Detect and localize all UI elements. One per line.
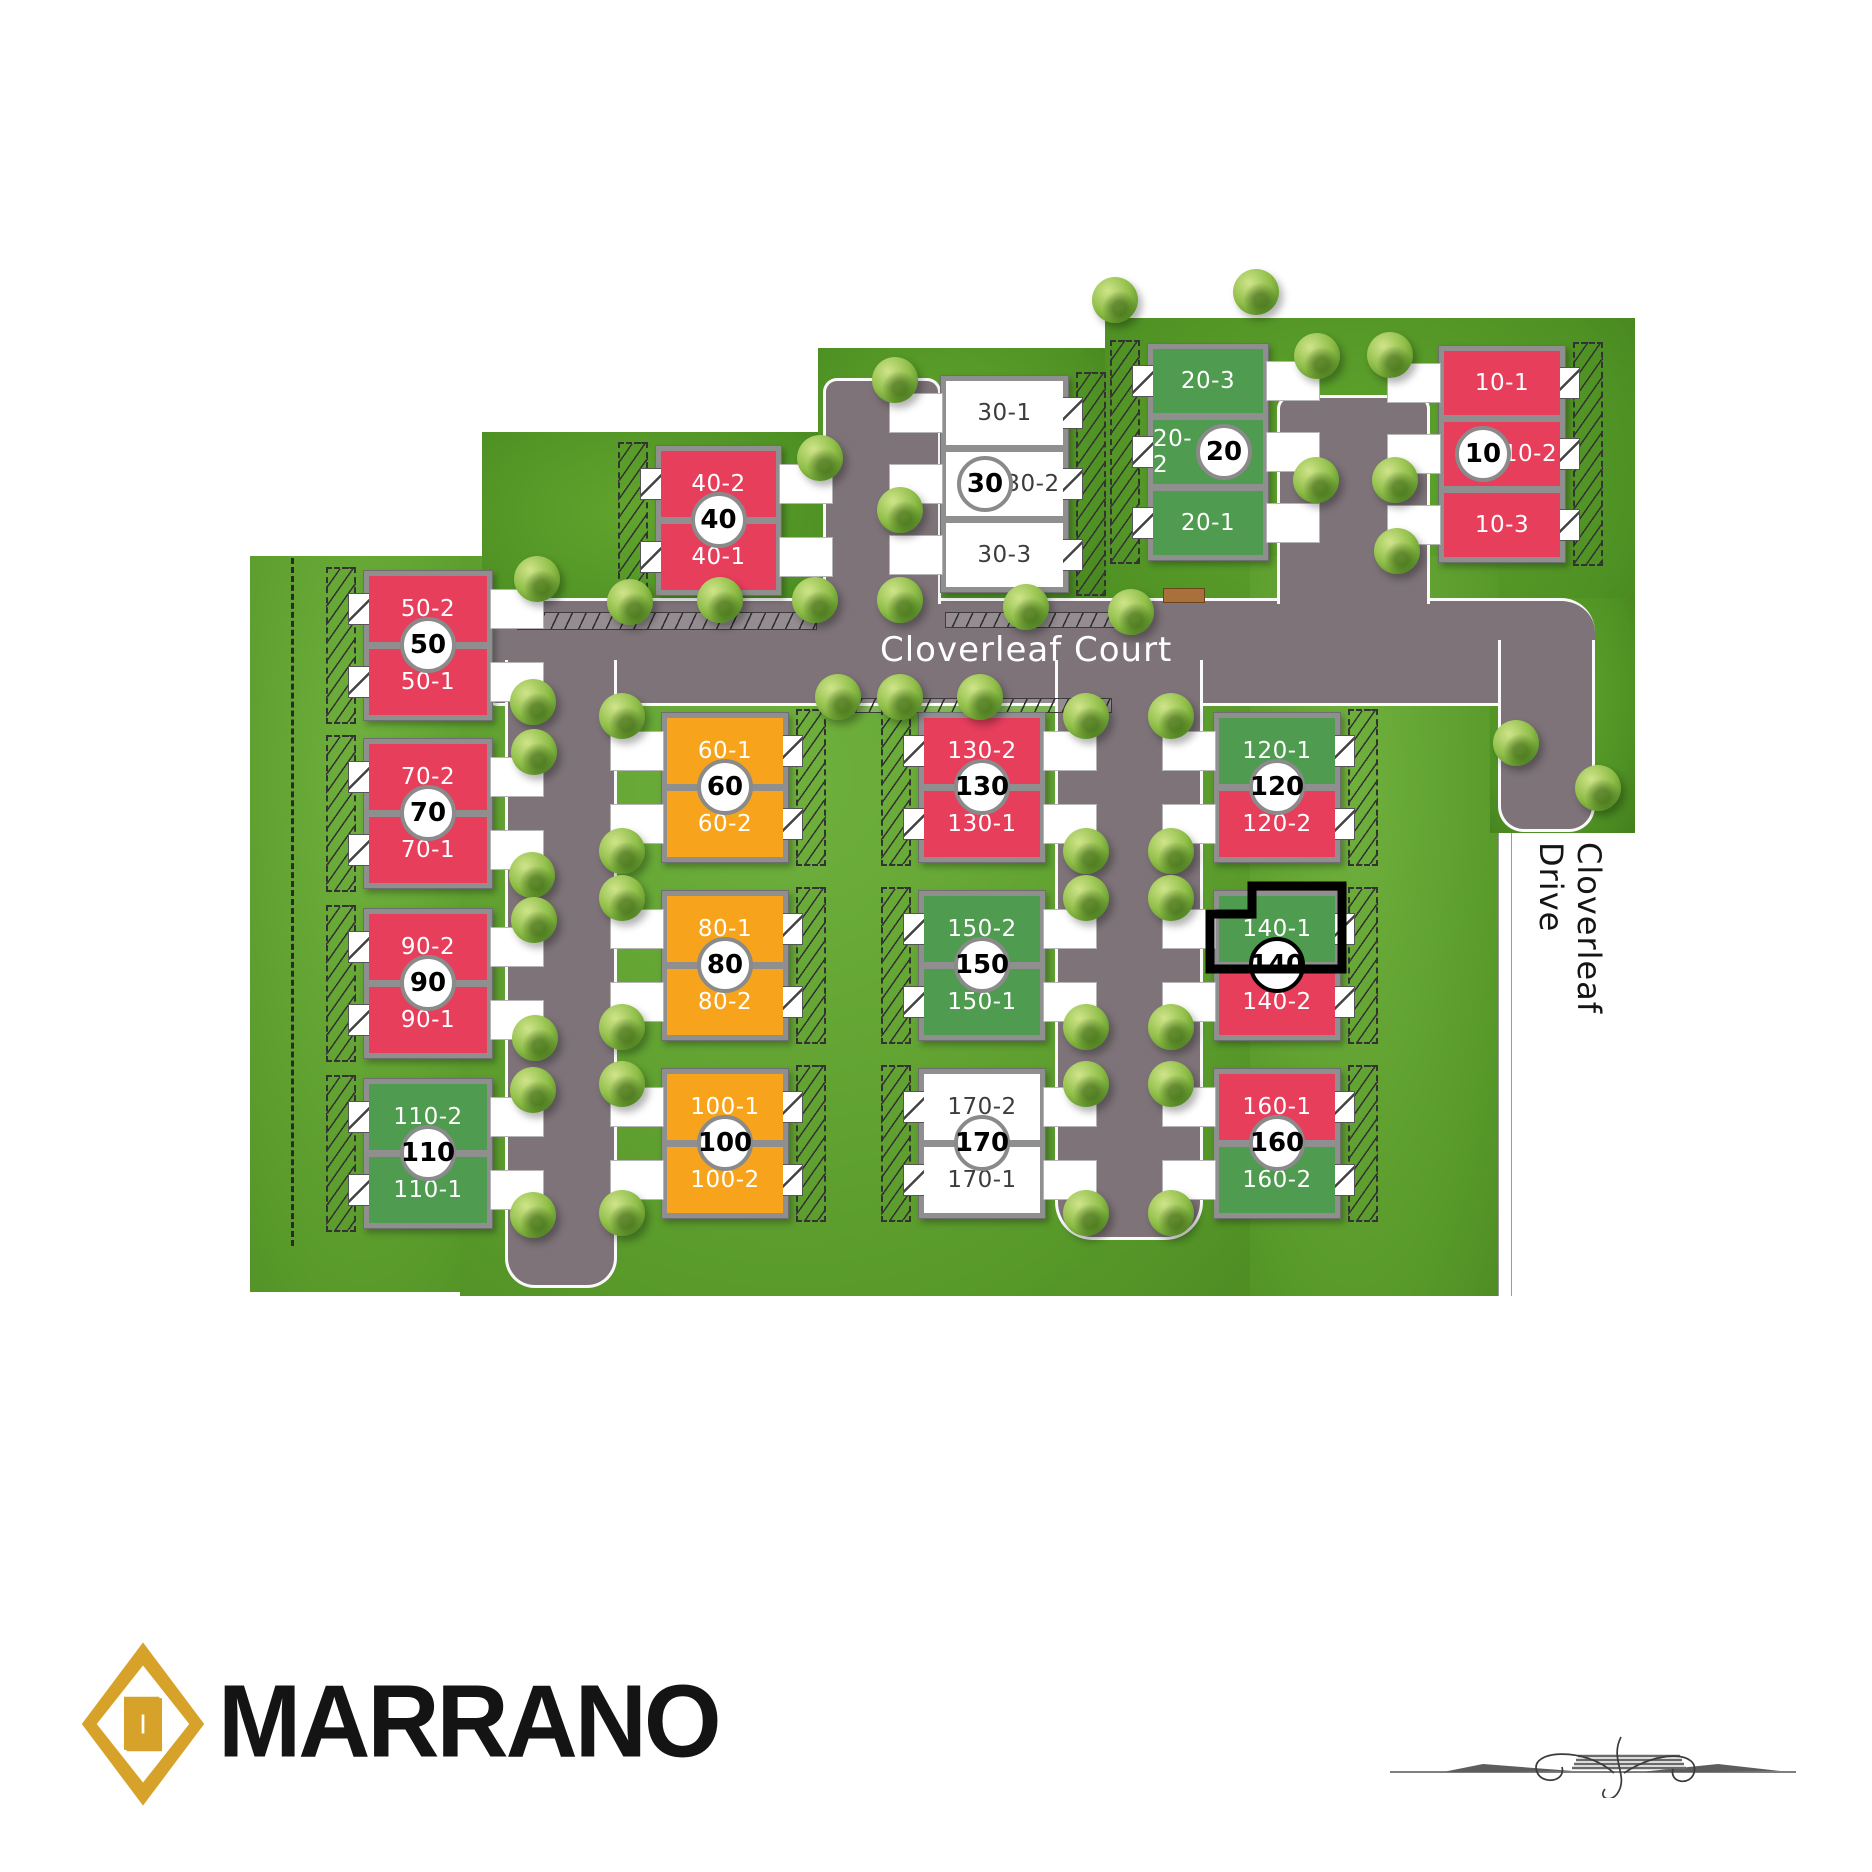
- unit-label-10-1: 10-1: [1475, 370, 1529, 396]
- building-120: 120-1120-2120: [1213, 712, 1341, 863]
- tree: [1293, 457, 1339, 503]
- building-badge-60: 60: [697, 759, 753, 815]
- building-badge-90: 90: [400, 955, 456, 1011]
- tree: [1374, 528, 1420, 574]
- unit-30-3[interactable]: 30-3: [946, 523, 1063, 587]
- tree: [510, 679, 556, 725]
- patio-hatch-40: [618, 442, 648, 599]
- unit-10-1[interactable]: 10-1: [1444, 351, 1560, 415]
- building-badge-30: 30: [957, 456, 1013, 512]
- tree: [599, 875, 645, 921]
- building-badge-20: 20: [1196, 424, 1252, 480]
- marrano-wordmark: MARRANO: [218, 1662, 719, 1781]
- tree: [1575, 765, 1621, 811]
- marrano-logo-icon: [75, 1642, 211, 1806]
- tree: [697, 577, 743, 623]
- tree: [1367, 332, 1413, 378]
- patio-hatch-80: [796, 887, 826, 1044]
- patio-hatch-100: [796, 1065, 826, 1222]
- tree: [815, 674, 861, 720]
- building-160: 160-1160-2160: [1213, 1068, 1341, 1219]
- building-80: 80-180-280: [661, 890, 789, 1041]
- tree: [1148, 828, 1194, 874]
- tree: [510, 1192, 556, 1238]
- patio-hatch-130: [881, 709, 911, 866]
- building-170: 170-2170-1170: [918, 1068, 1046, 1219]
- right-of-way-boundary: [1498, 833, 1512, 1296]
- tree: [1063, 828, 1109, 874]
- building-60: 60-160-260: [661, 712, 789, 863]
- driveway-40-1: [779, 537, 833, 577]
- building-90: 90-290-190: [363, 908, 493, 1059]
- building-badge-50: 50: [400, 617, 456, 673]
- building-badge-140: 140: [1249, 937, 1305, 993]
- tree: [599, 1004, 645, 1050]
- building-badge-40: 40: [691, 492, 747, 548]
- decorative-flourish: [1388, 1732, 1798, 1798]
- tree: [1092, 277, 1138, 323]
- tree: [514, 556, 560, 602]
- tree: [1063, 875, 1109, 921]
- patio-hatch-140: [1348, 887, 1378, 1044]
- tree: [599, 828, 645, 874]
- tree: [1148, 693, 1194, 739]
- patio-hatch-110: [326, 1075, 356, 1232]
- patio-hatch-60: [796, 709, 826, 866]
- patio-hatch-170: [881, 1065, 911, 1222]
- unit-label-20-3: 20-3: [1181, 368, 1235, 394]
- street-label-cloverleaf-drive: Cloverleaf Drive: [1532, 842, 1608, 1102]
- building-20: 20-320-220-120: [1147, 343, 1269, 561]
- building-badge-80: 80: [697, 937, 753, 993]
- unit-30-1[interactable]: 30-1: [946, 381, 1063, 445]
- tree: [877, 487, 923, 533]
- building-70: 70-270-170: [363, 738, 493, 889]
- building-badge-100: 100: [697, 1115, 753, 1171]
- sidewalk-hatch-west: [517, 612, 817, 630]
- driveway-20-1: [1266, 503, 1320, 543]
- patio-hatch-70: [326, 735, 356, 892]
- building-badge-10: 10: [1455, 426, 1511, 482]
- driveway-30-3: [889, 535, 943, 575]
- tree: [1294, 333, 1340, 379]
- building-50: 50-250-150: [363, 570, 493, 721]
- property-dashed-line: [291, 558, 294, 1246]
- tree: [1148, 875, 1194, 921]
- building-140: 140-1140-2140: [1213, 890, 1341, 1041]
- building-40: 40-240-140: [655, 445, 782, 596]
- tree: [599, 1061, 645, 1107]
- tree: [511, 729, 557, 775]
- tree: [1108, 589, 1154, 635]
- street-label-cloverleaf-court: Cloverleaf Court: [880, 630, 1172, 670]
- tree: [1148, 1190, 1194, 1236]
- tree: [957, 674, 1003, 720]
- tree: [797, 435, 843, 481]
- tree: [1233, 269, 1279, 315]
- building-130: 130-2130-1130: [918, 712, 1046, 863]
- tree: [792, 577, 838, 623]
- tree: [510, 1067, 556, 1113]
- tree: [1148, 1004, 1194, 1050]
- patio-hatch-160: [1348, 1065, 1378, 1222]
- unit-label-10-3: 10-3: [1475, 512, 1529, 538]
- building-110: 110-2110-1110: [363, 1078, 493, 1229]
- building-150: 150-2150-1150: [918, 890, 1046, 1041]
- tree: [1148, 1061, 1194, 1107]
- tree: [877, 577, 923, 623]
- tree: [1493, 720, 1539, 766]
- building-30: 30-130-230-330: [940, 375, 1069, 593]
- tree: [1372, 457, 1418, 503]
- patio-hatch-50: [326, 567, 356, 724]
- tree: [1063, 693, 1109, 739]
- site-plan-page: Cloverleaf Court Cloverleaf Drive MARRAN…: [0, 0, 1872, 1872]
- unit-label-30-1: 30-1: [977, 400, 1031, 426]
- unit-label-30-3: 30-3: [977, 542, 1031, 568]
- tree: [1063, 1061, 1109, 1107]
- building-badge-130: 130: [954, 759, 1010, 815]
- patio-hatch-90: [326, 905, 356, 1062]
- tree: [877, 674, 923, 720]
- building-badge-160: 160: [1249, 1115, 1305, 1171]
- building-badge-170: 170: [954, 1115, 1010, 1171]
- building-badge-70: 70: [400, 785, 456, 841]
- patio-hatch-120: [1348, 709, 1378, 866]
- tree: [509, 852, 555, 898]
- tree: [1003, 584, 1049, 630]
- tree: [599, 693, 645, 739]
- unit-label-20-1: 20-1: [1181, 510, 1235, 536]
- tree: [1063, 1004, 1109, 1050]
- unit-20-1[interactable]: 20-1: [1153, 491, 1263, 555]
- unit-20-3[interactable]: 20-3: [1153, 349, 1263, 413]
- building-10: 10-110-210-310: [1438, 345, 1566, 563]
- tree: [607, 579, 653, 625]
- tree: [872, 357, 918, 403]
- building-badge-120: 120: [1249, 759, 1305, 815]
- tree: [1063, 1190, 1109, 1236]
- unit-10-3[interactable]: 10-3: [1444, 493, 1560, 557]
- mailbox-kiosk: [1163, 588, 1205, 603]
- tree: [599, 1190, 645, 1236]
- building-badge-150: 150: [954, 937, 1010, 993]
- tree: [512, 1015, 558, 1061]
- tree: [511, 897, 557, 943]
- building-100: 100-1100-2100: [661, 1068, 789, 1219]
- patio-hatch-150: [881, 887, 911, 1044]
- building-badge-110: 110: [400, 1125, 456, 1181]
